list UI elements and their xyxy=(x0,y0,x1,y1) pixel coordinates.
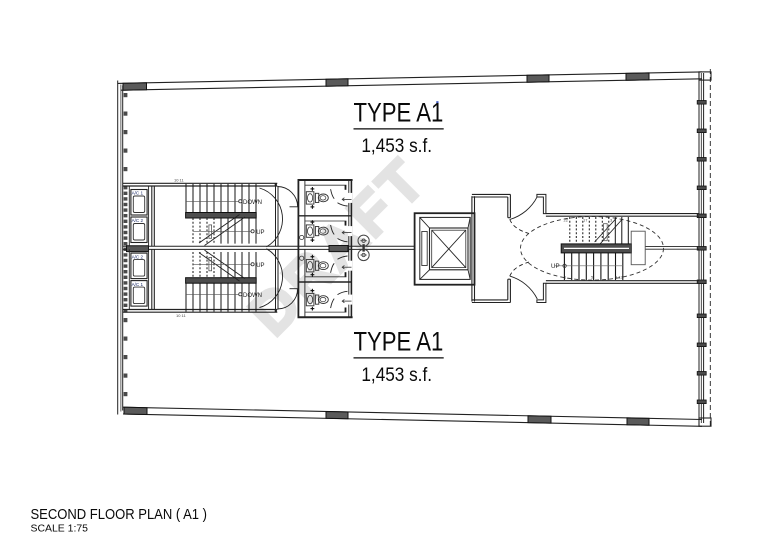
svg-text:17: 17 xyxy=(583,218,588,223)
svg-text:1,453 s.f.: 1,453 s.f. xyxy=(361,365,432,386)
svg-text:TYPE A1: TYPE A1 xyxy=(354,326,444,356)
svg-text:A/C 1: A/C 1 xyxy=(132,191,144,196)
svg-text:10 11: 10 11 xyxy=(176,313,186,318)
svg-text:A/C 1: A/C 1 xyxy=(132,282,144,287)
svg-text:UP: UP xyxy=(551,263,560,270)
svg-text:DOWN: DOWN xyxy=(243,200,262,206)
svg-text:10 11: 10 11 xyxy=(174,178,184,183)
svg-text:UP: UP xyxy=(256,230,264,236)
svg-text:DOWN: DOWN xyxy=(243,293,262,299)
svg-text:1,453 s.f.: 1,453 s.f. xyxy=(361,136,432,157)
svg-text:1: 1 xyxy=(564,275,567,280)
svg-text:TYPE A1: TYPE A1 xyxy=(354,97,444,127)
svg-text:A/C 2: A/C 2 xyxy=(132,218,144,223)
svg-text:A/C 2: A/C 2 xyxy=(132,254,144,259)
svg-text:9 13: 9 13 xyxy=(615,275,624,280)
svg-text:SECOND FLOOR PLAN ( A1 ): SECOND FLOOR PLAN ( A1 ) xyxy=(31,507,208,523)
svg-text:22: 22 xyxy=(564,218,569,223)
svg-text:SCALE 1:75: SCALE 1:75 xyxy=(31,524,89,535)
svg-text:UP: UP xyxy=(256,263,264,269)
